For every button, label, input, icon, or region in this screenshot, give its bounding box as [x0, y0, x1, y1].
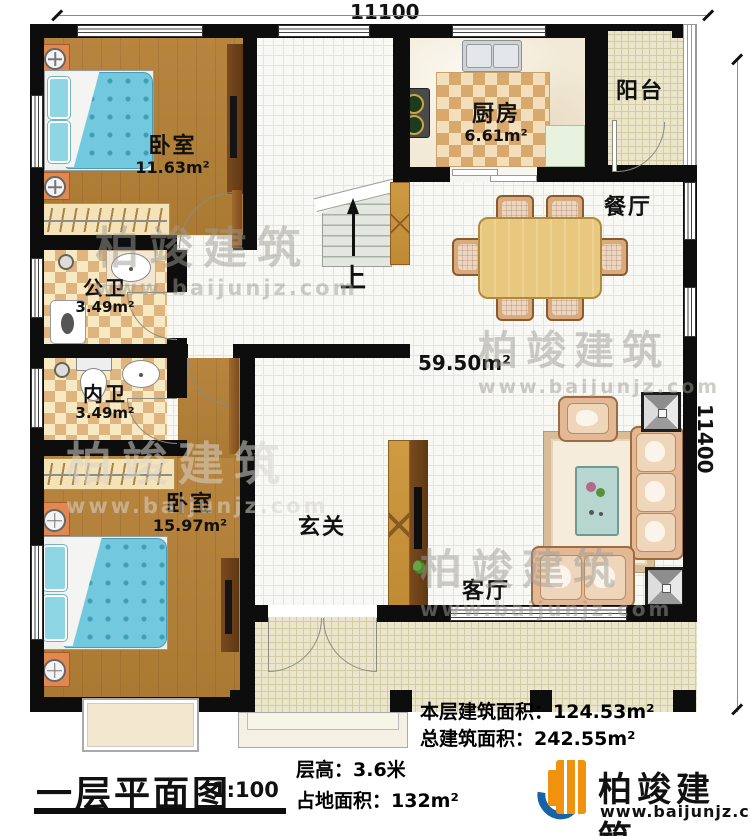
- room-label-balcony: 阳台: [616, 80, 664, 104]
- bed: [38, 536, 168, 650]
- window: [31, 258, 43, 318]
- room-area: 6.61m²: [448, 127, 544, 145]
- wall-kitchen-right: [585, 24, 608, 182]
- logo-building: [556, 760, 586, 814]
- dimension-right-value: 11400: [693, 404, 717, 470]
- wall-mid-horizontal-right: [233, 344, 410, 358]
- wall-mid-horizontal-left: [30, 344, 188, 358]
- stair-arrow-head: [347, 198, 359, 214]
- bedroom1-door: [232, 190, 242, 248]
- info-height: 层高：3.6米: [296, 755, 406, 782]
- plan-scale: 1:100: [212, 778, 279, 802]
- room-label-bath-public: 公卫 3.49m²: [55, 277, 155, 316]
- room-label-living: 客厅: [462, 580, 510, 604]
- wall-bottom-entry: [255, 605, 268, 622]
- pillar: [390, 690, 412, 712]
- side-table: [641, 392, 681, 432]
- room-area: 11.63m²: [110, 159, 235, 177]
- room-area: 15.97m²: [125, 517, 255, 535]
- bedroom2-door: [229, 358, 239, 454]
- coffee-table: [575, 466, 619, 536]
- window: [452, 25, 546, 37]
- armchair: [558, 396, 618, 442]
- room-label-kitchen: 厨房 6.61m²: [448, 103, 544, 145]
- brand-logo-icon: [540, 758, 594, 826]
- room-label-dining: 餐厅: [604, 196, 652, 220]
- side-table: [645, 567, 685, 607]
- wardrobe: [33, 203, 170, 237]
- back-step: [82, 698, 199, 752]
- room-name: 玄关: [298, 515, 346, 540]
- room-name: 客厅: [462, 579, 510, 604]
- window: [684, 287, 696, 337]
- kitchen-sliding-door: [450, 167, 537, 182]
- kitchen-sink: [462, 40, 522, 72]
- stair-arrow: [352, 212, 355, 256]
- wardrobe: [33, 458, 175, 490]
- balcony-railing: [683, 24, 697, 182]
- dimension-top-line: [55, 15, 710, 16]
- info-total-area: 总建筑面积：242.55m²: [420, 724, 635, 751]
- room-area: 3.49m²: [55, 405, 155, 422]
- room-label-bedroom2: 卧室 15.97m²: [125, 493, 255, 535]
- fridge: [545, 125, 585, 167]
- sofa-right: [630, 426, 684, 560]
- room-name: 阳台: [616, 79, 664, 104]
- shower-head: [58, 254, 74, 270]
- tv-cabinet: [221, 558, 239, 652]
- dimension-top-value: 11100: [350, 0, 420, 24]
- stairs-up-label: 上: [340, 258, 368, 295]
- hall-area-label: 59.50m²: [418, 352, 511, 374]
- room-name: 卧室: [125, 493, 255, 517]
- room-name: 卧室: [110, 135, 235, 159]
- room-name: 公卫: [55, 277, 155, 299]
- room-label-bedroom1: 卧室 11.63m²: [110, 135, 235, 177]
- window: [278, 25, 370, 37]
- window: [31, 545, 43, 640]
- room-area: 3.49m²: [55, 299, 155, 316]
- shower-head: [54, 362, 70, 378]
- dimension-right-line: [737, 60, 738, 712]
- wall-bath-public-right: [167, 250, 187, 292]
- brand-name: 柏竣建筑: [598, 762, 750, 836]
- partition-cabinet: [388, 440, 410, 610]
- wall-bath-private-right: [167, 358, 187, 398]
- window: [31, 368, 43, 428]
- wall-bedroom1-right: [243, 24, 257, 250]
- info-floor-area: 本层建筑面积：124.53m²: [420, 697, 654, 724]
- info-footprint: 占地面积：132m²: [296, 786, 459, 813]
- dining-table: [478, 217, 602, 299]
- pillar: [673, 690, 696, 712]
- room-name: 餐厅: [604, 195, 652, 220]
- sofa-bottom: [531, 546, 635, 608]
- brand-url: www.baijunjz.com: [600, 802, 750, 821]
- window: [450, 606, 627, 621]
- room-name: 厨房: [448, 103, 544, 127]
- entry-steps: [238, 712, 408, 748]
- stair-side-cabinet: [390, 182, 410, 265]
- partition-tv-wall: [410, 440, 428, 610]
- wall-right: [683, 182, 697, 622]
- window: [31, 95, 43, 168]
- title-underline: [34, 808, 286, 814]
- pillar: [230, 690, 253, 712]
- window: [77, 25, 203, 37]
- room-label-foyer: 玄关: [298, 516, 346, 540]
- window: [684, 182, 696, 240]
- logo-building-small: [548, 770, 558, 806]
- wall-kitchen-left: [393, 24, 410, 182]
- plant: [413, 560, 425, 574]
- wall-bedroom1-bottom: [30, 235, 177, 250]
- room-name: 内卫: [55, 383, 155, 405]
- room-label-bath-private: 内卫 3.49m²: [55, 383, 155, 422]
- floorplan-canvas: 上: [0, 0, 750, 836]
